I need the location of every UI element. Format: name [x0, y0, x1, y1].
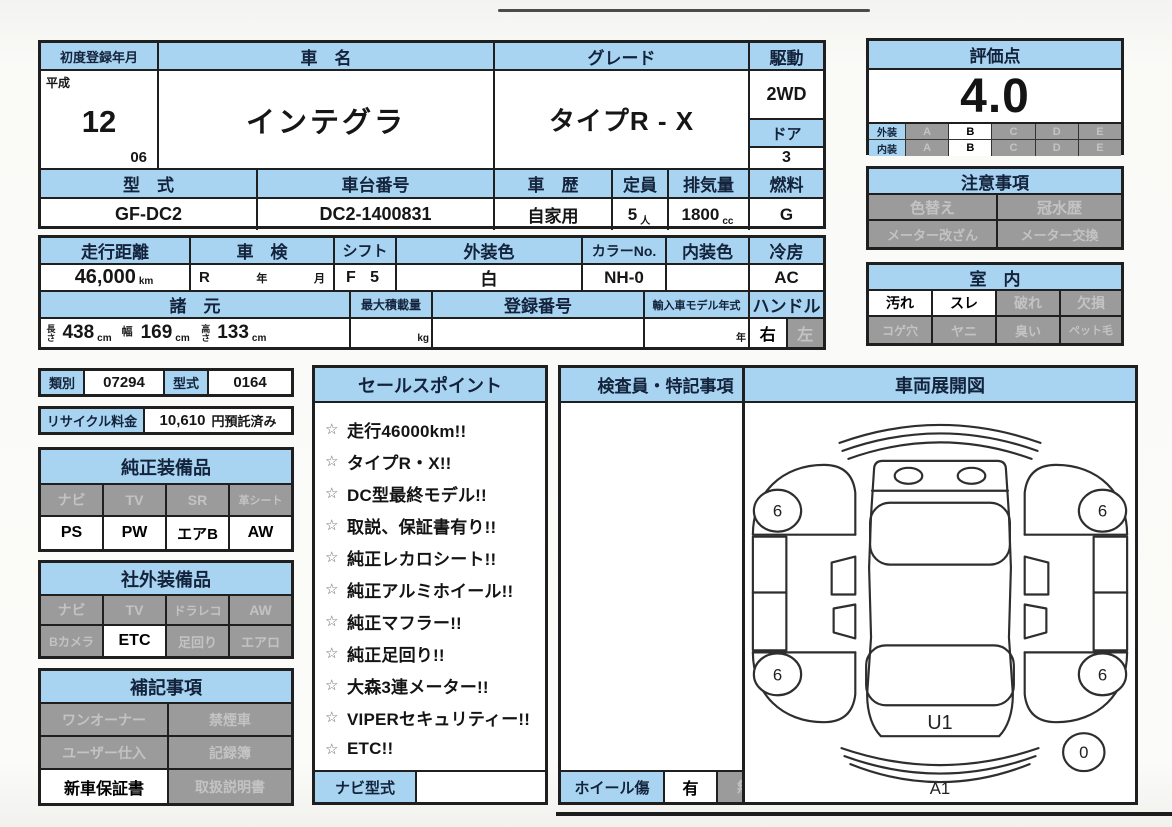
width-label: 幅 — [122, 327, 133, 339]
inspection-header: 車 検 — [191, 238, 335, 265]
oem-pw: PW — [104, 517, 167, 549]
fuel-value: G — [750, 199, 823, 230]
windshield — [870, 503, 1010, 565]
sales-point-text: 大森3連メーター!! — [347, 673, 489, 698]
spare-mark: 0 — [1079, 743, 1088, 762]
oem-aw: AW — [230, 517, 291, 549]
chassis-no-header: 車台番号 — [258, 170, 495, 199]
sales-point-text: 純正アルミホイール!! — [347, 577, 513, 602]
note-one-owner: ワンオーナー — [41, 704, 169, 737]
oem-sunroof: SR — [167, 485, 230, 517]
cooling-header: 冷房 — [750, 238, 823, 265]
oem-equipment-box: 純正装備品 ナビ TV SR 革シート PS PW エアB AW — [38, 447, 294, 552]
exterior-color-value: 白 — [397, 265, 583, 292]
sales-points-box: セールスポイント ☆走行46000km!! ☆タイプR・X!! ☆DC型最終モデ… — [312, 365, 548, 805]
chassis-no-value: DC2-1400831 — [258, 199, 495, 230]
exterior-color-header: 外装色 — [397, 238, 583, 265]
room-tear: 破れ — [997, 291, 1061, 317]
max-load-header: 最大積載量 — [351, 292, 433, 319]
grade-header: グレード — [495, 43, 750, 71]
room-header: 室 内 — [869, 265, 1121, 291]
interior-grade-d: D — [1036, 140, 1079, 156]
room-dirt: 汚れ — [869, 291, 933, 317]
shift-value: F 5 — [335, 265, 397, 292]
exterior-grade-a: A — [906, 124, 949, 139]
sales-point-item: ☆VIPERセキュリティー!! — [325, 701, 537, 733]
caution-header: 注意事項 — [869, 169, 1121, 195]
star-icon: ☆ — [325, 452, 347, 470]
reg-number-value — [433, 319, 645, 347]
bottom-mark: A1 — [930, 779, 950, 798]
max-load-unit: kg — [417, 333, 429, 344]
star-icon: ☆ — [325, 676, 347, 694]
length-label-text: 長さ — [45, 324, 54, 342]
exterior-grade-d: D — [1036, 124, 1079, 139]
interior-grade-row: 内装 A B C D E — [869, 140, 1121, 156]
interior-color-header: 内装色 — [667, 238, 750, 265]
oem-navi: ナビ — [41, 485, 104, 517]
exterior-grade-c: C — [992, 124, 1035, 139]
car-name-value: インテグラ — [159, 71, 495, 170]
color-no-value: NH-0 — [583, 265, 667, 292]
sales-point-item: ☆純正足回り!! — [325, 637, 537, 669]
star-icon: ☆ — [325, 548, 347, 566]
room-odor: 臭い — [997, 317, 1061, 343]
caution-meter-tamper: メーター改ざん — [869, 221, 998, 247]
history-header: 車 歴 — [495, 170, 613, 199]
grade-value: タイプR - X — [495, 71, 750, 170]
mileage-number: 46,000 — [75, 266, 136, 289]
first-registration-header: 初度登録年月 — [41, 43, 159, 71]
rear-left-wheel-mark: 6 — [773, 665, 782, 684]
mileage-header: 走行距離 — [41, 238, 191, 265]
diagram-header: 車両展開図 — [745, 368, 1135, 403]
height-unit: cm — [252, 333, 266, 344]
wheel-damage-label: ホイール傷 — [561, 772, 665, 802]
sales-point-text: 純正足回り!! — [347, 641, 445, 666]
history-value: 自家用 — [495, 199, 613, 230]
exterior-grade-row: 外装 A B C D E — [869, 124, 1121, 140]
inspector-notes-body — [561, 403, 770, 770]
am-dashcam: ドラレコ — [167, 596, 230, 626]
right-rear-window — [1025, 604, 1047, 638]
score-value: 4.0 — [869, 70, 1121, 124]
sales-point-text: 純正レカロシート!! — [347, 545, 496, 570]
height-value: 133 — [217, 322, 249, 344]
inspection-era: R — [199, 269, 210, 286]
interior-grade-e: E — [1079, 140, 1121, 156]
spec-header: 諸 元 — [41, 292, 351, 319]
oem-header: 純正装備品 — [41, 450, 291, 485]
oem-ps: PS — [41, 517, 104, 549]
era-label: 平成 — [46, 74, 70, 91]
width-value: 169 — [141, 322, 173, 344]
aftermarket-equipment-box: 社外装備品 ナビ TV ドラレコ AW Bカメラ ETC 足回り エアロ — [38, 560, 294, 659]
note-service-record: 記録簿 — [169, 737, 291, 770]
sales-point-text: タイプR・X!! — [347, 449, 452, 474]
recycle-label: リサイクル料金 — [41, 409, 145, 432]
displacement-value: 1800 cc — [669, 199, 750, 230]
sales-point-item: ☆取説、保証書有り!! — [325, 509, 537, 541]
recycle-amount: 10,610 — [160, 412, 206, 429]
notes-box: 補記事項 ワンオーナー 禁煙車 ユーザー仕入 記録簿 新車保証書 取扱説明書 — [38, 668, 294, 806]
navi-type-value — [417, 772, 545, 802]
exterior-grade-e: E — [1079, 124, 1121, 139]
star-icon: ☆ — [325, 708, 347, 726]
am-tv: TV — [104, 596, 167, 626]
displacement-unit: cc — [722, 216, 733, 227]
color-no-header: カラーNo. — [583, 238, 667, 265]
registration-month: 06 — [130, 149, 147, 166]
door-header: ドア — [750, 120, 823, 148]
capacity-value: 5 人 — [613, 199, 669, 230]
sales-point-text: ETC!! — [347, 739, 393, 759]
mileage-value: 46,000 km — [41, 265, 191, 292]
note-non-smoker: 禁煙車 — [169, 704, 291, 737]
score-header: 評価点 — [869, 41, 1121, 70]
sales-point-text: 走行46000km!! — [347, 417, 466, 442]
star-icon: ☆ — [325, 740, 347, 758]
sales-point-item: ☆純正レカロシート!! — [325, 541, 537, 573]
height-label-text: 高さ — [200, 324, 209, 342]
type-no-value: 0164 — [209, 371, 291, 394]
type-no-label: 型式 — [165, 371, 209, 394]
note-owners-manual: 取扱説明書 — [169, 770, 291, 803]
mileage-unit: km — [139, 276, 153, 287]
max-load-value: kg — [351, 319, 433, 347]
inspector-notes-box: 検査員・特記事項 ホイール傷 有 無 — [558, 365, 773, 805]
model-code-value: GF-DC2 — [41, 199, 258, 230]
front-left-wheel-mark: 6 — [773, 502, 782, 521]
am-aw: AW — [230, 596, 291, 626]
note-user-purchase: ユーザー仕入 — [41, 737, 169, 770]
rear-panel-mark: U1 — [927, 712, 952, 734]
spec-value: 長さ 438 cm 幅 169 cm 高さ 133 cm — [41, 319, 351, 347]
sales-point-item: ☆純正アルミホイール!! — [325, 573, 537, 605]
right-mirror — [958, 468, 986, 484]
left-mirror — [895, 468, 923, 484]
aftermarket-header: 社外装備品 — [41, 563, 291, 596]
interior-grade-a: A — [906, 140, 949, 156]
scan-line-bottom — [556, 812, 1172, 816]
sales-point-text: 取説、保証書有り!! — [347, 513, 496, 538]
sales-points-list: ☆走行46000km!! ☆タイプR・X!! ☆DC型最終モデル!! ☆取説、保… — [315, 403, 545, 765]
capacity-number: 5 — [628, 205, 637, 225]
rear-bumper — [842, 748, 1039, 765]
interior-grade-b-selected: B — [949, 140, 992, 156]
caution-box: 注意事項 色替え 冠水歴 メーター改ざん メーター交換 — [866, 166, 1124, 250]
shift-header: シフト — [335, 238, 397, 265]
caution-flood: 冠水歴 — [998, 195, 1121, 221]
import-year-header: 輸入車モデル年式 — [645, 292, 750, 319]
inspector-header: 検査員・特記事項 — [561, 368, 770, 403]
auction-sheet: 初度登録年月 車 名 グレード 駆動 平成 12 06 インテグラ タイプR -… — [0, 0, 1172, 827]
width-unit: cm — [175, 333, 189, 344]
oem-tv: TV — [104, 485, 167, 517]
height-label: 高さ — [200, 324, 209, 342]
length-label: 長さ — [45, 324, 54, 342]
am-backup-camera: Bカメラ — [41, 626, 104, 656]
sales-point-item: ☆純正マフラー!! — [325, 605, 537, 637]
length-unit: cm — [97, 333, 111, 344]
score-box: 評価点 4.0 外装 A B C D E 内装 A B C D E — [866, 38, 1124, 155]
left-rear-window — [834, 604, 856, 638]
left-front-window — [832, 557, 856, 595]
room-condition-box: 室 内 汚れ スレ 破れ 欠損 コゲ穴 ヤニ 臭い ペット毛 — [866, 262, 1124, 346]
category-type-box: 類別 07294 型式 0164 — [38, 368, 294, 397]
caution-repaint: 色替え — [869, 195, 998, 221]
door-value: 3 — [750, 148, 823, 170]
room-pet-hair: ペット毛 — [1061, 317, 1121, 343]
rear-window — [866, 645, 1014, 705]
am-aero: エアロ — [230, 626, 291, 656]
interior-color-value — [667, 265, 750, 292]
recycle-suffix: 円預託済み — [211, 411, 276, 430]
steering-header: ハンドル — [750, 292, 823, 319]
am-etc: ETC — [104, 626, 167, 656]
oem-airbag: エアB — [167, 517, 230, 549]
import-year-unit: 年 — [736, 329, 746, 344]
sales-point-item: ☆大森3連メーター!! — [325, 669, 537, 701]
navi-type-row: ナビ型式 — [315, 770, 545, 802]
sales-point-item: ☆DC型最終モデル!! — [325, 477, 537, 509]
wheel-damage-row: ホイール傷 有 無 — [561, 770, 770, 802]
sales-point-text: VIPERセキュリティー!! — [347, 705, 530, 730]
car-name-header: 車 名 — [159, 43, 495, 71]
front-right-wheel-mark: 6 — [1098, 502, 1107, 521]
capacity-unit: 人 — [640, 212, 650, 227]
sales-points-header: セールスポイント — [315, 368, 545, 403]
star-icon: ☆ — [325, 420, 347, 438]
right-front-window — [1025, 557, 1049, 595]
displacement-number: 1800 — [682, 205, 720, 225]
room-nicotine: ヤニ — [933, 317, 997, 343]
cooling-value: AC — [750, 265, 823, 292]
star-icon: ☆ — [325, 644, 347, 662]
am-navi: ナビ — [41, 596, 104, 626]
sales-point-text: DC型最終モデル!! — [347, 481, 487, 506]
room-missing: 欠損 — [1061, 291, 1121, 317]
navi-type-label: ナビ型式 — [315, 772, 417, 802]
displacement-header: 排気量 — [669, 170, 750, 199]
fuel-header: 燃料 — [750, 170, 823, 199]
exterior-grade-label: 外装 — [869, 124, 906, 139]
inspection-value: R 年 月 — [191, 265, 335, 292]
registration-year: 12 — [82, 104, 116, 140]
caution-meter-replace: メーター交換 — [998, 221, 1121, 247]
drive-value: 2WD — [750, 71, 823, 120]
capacity-header: 定員 — [613, 170, 669, 199]
am-suspension: 足回り — [167, 626, 230, 656]
scan-line-top — [498, 9, 870, 12]
star-icon: ☆ — [325, 484, 347, 502]
vehicle-main-table: 初度登録年月 車 名 グレード 駆動 平成 12 06 インテグラ タイプR -… — [38, 40, 826, 229]
star-icon: ☆ — [325, 516, 347, 534]
drive-header: 駆動 — [750, 43, 823, 71]
sales-point-item: ☆タイプR・X!! — [325, 445, 537, 477]
vehicle-detail-table: 走行距離 車 検 シフト 外装色 カラーNo. 内装色 冷房 46,000 km… — [38, 235, 826, 350]
star-icon: ☆ — [325, 580, 347, 598]
note-new-car-warranty: 新車保証書 — [41, 770, 169, 803]
exterior-grade-b-selected: B — [949, 124, 992, 139]
length-value: 438 — [62, 322, 94, 344]
star-icon: ☆ — [325, 612, 347, 630]
import-year-value: 年 — [645, 319, 750, 347]
steering-right: 右 — [750, 319, 786, 347]
recycle-fee-box: リサイクル料金 10,610 円預託済み — [38, 406, 294, 435]
first-registration-value: 平成 12 06 — [41, 71, 159, 170]
sales-point-item: ☆走行46000km!! — [325, 413, 537, 445]
inspection-year-unit: 年 — [256, 270, 267, 286]
room-burn-hole: コゲ穴 — [869, 317, 933, 343]
interior-grade-c: C — [992, 140, 1035, 156]
vehicle-diagram-box: 車両展開図 — [742, 365, 1138, 805]
vehicle-diagram: 6 6 6 6 U1 A1 0 — [745, 403, 1135, 802]
oem-leather: 革シート — [230, 485, 291, 517]
steering-value: 右 左 — [750, 319, 823, 347]
rear-right-wheel-mark: 6 — [1098, 665, 1107, 684]
wheel-damage-yes: 有 — [665, 772, 718, 802]
room-scuff: スレ — [933, 291, 997, 317]
sales-point-text: 純正マフラー!! — [347, 609, 462, 634]
sales-point-item: ☆ETC!! — [325, 733, 537, 765]
category-value: 07294 — [85, 371, 165, 394]
category-label: 類別 — [41, 371, 85, 394]
interior-grade-label: 内装 — [869, 140, 906, 156]
recycle-value: 10,610 円預託済み — [145, 409, 291, 432]
inspection-month-unit: 月 — [314, 270, 325, 286]
notes-header: 補記事項 — [41, 671, 291, 704]
steering-left: 左 — [786, 319, 824, 347]
model-code-header: 型 式 — [41, 170, 258, 199]
reg-number-header: 登録番号 — [433, 292, 645, 319]
